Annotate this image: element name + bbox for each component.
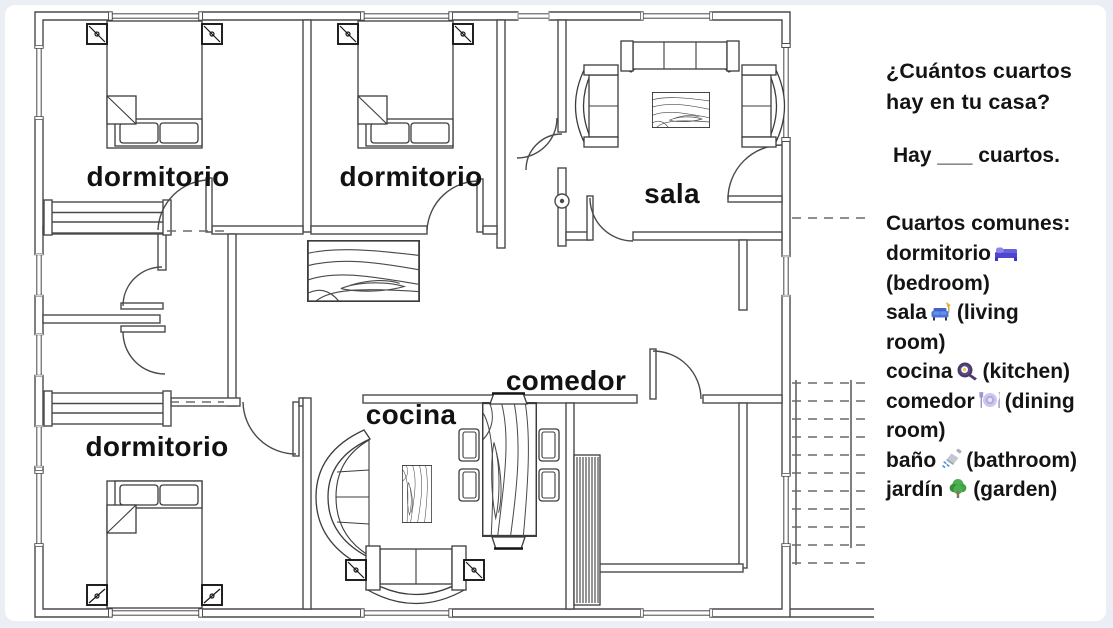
nightstand <box>202 24 222 44</box>
answer-prompt: Hay ___ cuartos. <box>886 144 1082 168</box>
dining-table <box>483 402 537 537</box>
closet <box>44 200 171 235</box>
frying-pan-icon <box>956 359 980 381</box>
entry-door-leaf <box>728 196 782 202</box>
room-label-comedor: comedor <box>506 365 626 396</box>
tree-icon <box>946 477 970 499</box>
vocab-heading: Cuartos comunes: <box>886 212 1082 236</box>
coffee-table <box>652 92 710 127</box>
armchair <box>576 65 619 147</box>
vocab-es: dormitorio <box>886 242 991 265</box>
stairs <box>790 380 874 617</box>
curved-sofa <box>316 430 370 566</box>
nightstand <box>87 24 107 44</box>
side-table <box>346 560 366 580</box>
room-label-dormitorio-2: dormitorio <box>340 161 483 192</box>
vocab-item-jardin: jardín(garden) <box>886 475 1082 505</box>
question-text: ¿Cuántos cuartos hay en tu casa? <box>886 56 1082 117</box>
wood-rug <box>307 241 420 301</box>
dining-chair <box>539 429 559 461</box>
nightstand <box>202 585 222 605</box>
vocab-es: jardín <box>886 478 943 501</box>
vocab-item-bano: baño(bathroom) <box>886 446 1082 476</box>
vocab-item-sala: sala(living room) <box>886 298 1082 357</box>
vocab-en: (garden) <box>973 478 1057 501</box>
nightstand <box>453 24 473 44</box>
vocab-item-dormitorio: dormitorio(bedroom) <box>886 239 1082 298</box>
bed <box>107 21 202 148</box>
loveseat <box>366 546 466 604</box>
side-table <box>464 560 484 580</box>
vocab-es: comedor <box>886 390 975 413</box>
armchair <box>742 65 785 147</box>
dining-chair <box>459 469 479 501</box>
dining-chair <box>539 469 559 501</box>
room-label-sala: sala <box>644 178 700 209</box>
piano <box>574 455 600 605</box>
dining-bench <box>492 537 525 549</box>
vocab-item-cocina: cocina(kitchen) <box>886 357 1082 387</box>
info-panel: ¿Cuántos cuartos hay en tu casa? Hay ___… <box>886 56 1082 505</box>
vocab-es: cocina <box>886 360 953 383</box>
bed <box>358 21 453 148</box>
vocab-es: baño <box>886 449 936 472</box>
closet <box>44 391 171 426</box>
plate-cutlery-icon <box>978 389 1002 411</box>
sofa <box>621 41 739 72</box>
vocab-en: (kitchen) <box>983 360 1071 383</box>
shower-icon <box>939 448 963 470</box>
room-label-cocina: cocina <box>366 399 457 430</box>
floor-plan: dormitorio dormitorio sala dormitorio co… <box>0 0 880 628</box>
bed <box>107 481 202 608</box>
vocab-en: (bathroom) <box>966 449 1077 472</box>
vocab-en: (bedroom) <box>886 272 990 295</box>
small-table <box>402 465 431 523</box>
nightstand <box>338 24 358 44</box>
dining-chair <box>459 429 479 461</box>
entry-door-swing <box>728 145 782 199</box>
vocab-item-comedor: comedor(dining room) <box>886 387 1082 446</box>
nightstand <box>87 585 107 605</box>
room-label-dormitorio-3: dormitorio <box>86 431 229 462</box>
room-label-dormitorio-1: dormitorio <box>87 161 230 192</box>
couch-lamp-icon <box>930 300 954 322</box>
vocab-list: dormitorio(bedroom) sala(living room) co… <box>886 239 1082 505</box>
bed-icon <box>994 241 1018 263</box>
vocab-es: sala <box>886 301 927 324</box>
